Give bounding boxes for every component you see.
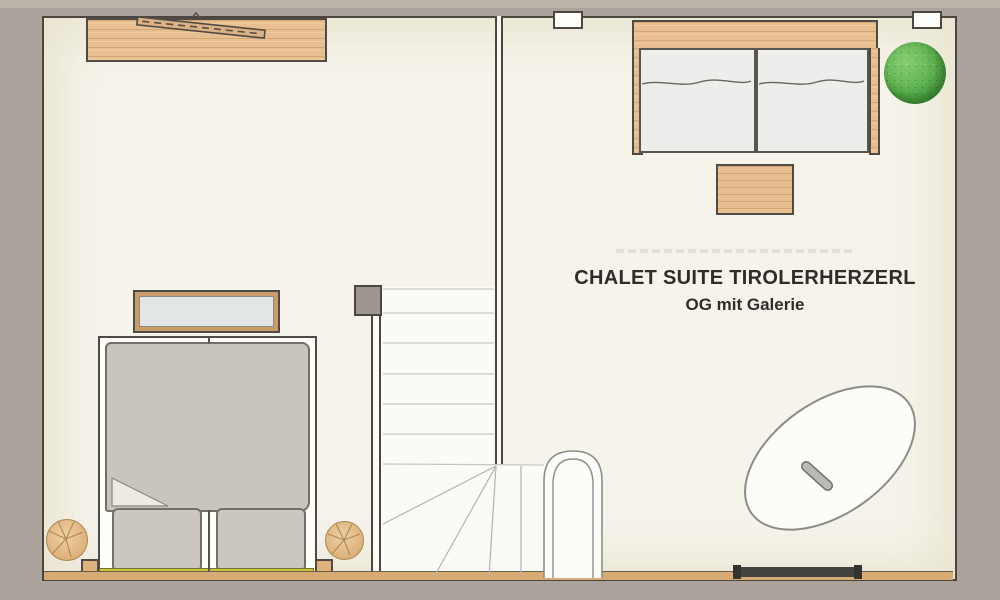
staircase-winder-landing [381, 464, 602, 578]
upper-bed-mattress-right [756, 48, 869, 153]
pillow-right [216, 508, 306, 572]
sideboard-icon [86, 18, 327, 62]
floorplan-page: CHALET SUITE TIROLERHERZERL OG mit Galer… [0, 0, 1000, 600]
log-stool-right [325, 521, 364, 560]
plan-title-block: CHALET SUITE TIROLERHERZERL OG mit Galer… [565, 266, 925, 315]
potted-plant-icon [884, 42, 946, 104]
upper-bed-rail-right [869, 48, 880, 155]
duvet [105, 342, 310, 512]
newel-post [354, 285, 382, 316]
pillow-left [112, 508, 202, 572]
floor-label: OG mit Galerie [565, 295, 925, 315]
staircase-side-wall [371, 315, 381, 575]
bench-cushion [139, 296, 274, 327]
upper-bed-mattress-left [639, 48, 756, 153]
suite-name-label: CHALET SUITE TIROLERHERZERL [565, 266, 925, 290]
ghost-text-artifact [616, 249, 852, 253]
dark-picture-window [736, 567, 859, 577]
window-frame-cap-right [854, 565, 862, 579]
log-stool-left [46, 519, 88, 561]
double-bed-lower-icon [98, 336, 317, 576]
bench-icon [133, 290, 280, 333]
window-frame-cap-left [733, 565, 741, 579]
staircase-upper-flight [381, 287, 495, 464]
side-table-icon [716, 164, 794, 215]
window-icon-top-center [553, 11, 583, 29]
interior-dividing-wall [495, 16, 503, 466]
window-icon-top-right [912, 11, 942, 29]
